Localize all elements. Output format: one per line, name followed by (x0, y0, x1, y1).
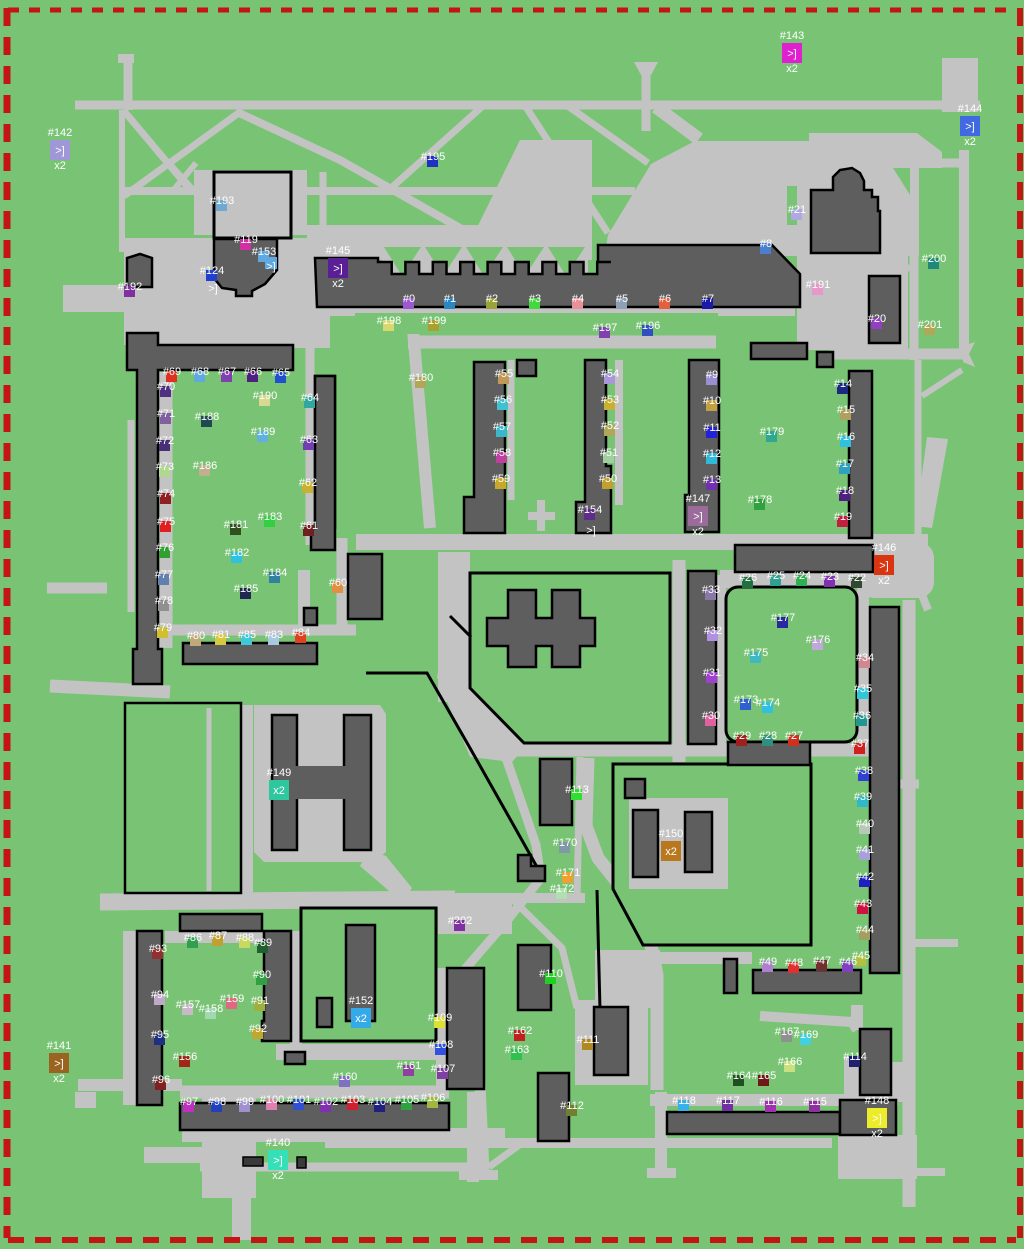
svg-text:#197: #197 (593, 322, 617, 334)
svg-text:#87: #87 (209, 930, 227, 942)
svg-text:#31: #31 (703, 667, 721, 679)
svg-text:>]: >] (586, 525, 595, 537)
svg-text:>]: >] (55, 145, 64, 157)
svg-text:#83: #83 (265, 629, 283, 641)
svg-text:#84: #84 (292, 627, 310, 639)
svg-text:#81: #81 (212, 629, 230, 641)
svg-text:x2: x2 (54, 160, 66, 172)
svg-text:#29: #29 (733, 730, 751, 742)
svg-text:#57: #57 (493, 421, 511, 433)
svg-text:#3: #3 (529, 293, 541, 305)
svg-text:#17: #17 (836, 458, 854, 470)
svg-text:#196: #196 (636, 320, 660, 332)
svg-text:#164: #164 (727, 1070, 751, 1082)
svg-text:#54: #54 (601, 368, 619, 380)
svg-text:#180: #180 (409, 372, 433, 384)
svg-text:#48: #48 (785, 957, 803, 969)
svg-text:#200: #200 (922, 253, 946, 265)
svg-text:#102: #102 (314, 1096, 338, 1108)
svg-text:#67: #67 (218, 366, 236, 378)
svg-text:#5: #5 (616, 293, 628, 305)
svg-text:#171: #171 (556, 867, 580, 879)
svg-text:#11: #11 (703, 422, 721, 434)
svg-text:#190: #190 (253, 390, 277, 402)
svg-text:>]: >] (266, 261, 275, 273)
svg-text:#147: #147 (686, 493, 710, 505)
svg-text:#68: #68 (191, 366, 209, 378)
svg-text:#189: #189 (251, 426, 275, 438)
svg-text:#119: #119 (234, 234, 258, 246)
svg-text:#15: #15 (837, 404, 855, 416)
svg-text:#34: #34 (856, 652, 874, 664)
svg-text:#202: #202 (448, 915, 472, 927)
svg-text:#95: #95 (151, 1029, 169, 1041)
svg-text:#16: #16 (837, 431, 855, 443)
svg-text:#106: #106 (421, 1092, 445, 1104)
svg-text:#152: #152 (349, 995, 373, 1007)
svg-text:#30: #30 (702, 710, 720, 722)
svg-text:#162: #162 (508, 1025, 532, 1037)
svg-text:#85: #85 (238, 629, 256, 641)
svg-text:#142: #142 (48, 127, 72, 139)
svg-text:#35: #35 (854, 683, 872, 695)
svg-text:#38: #38 (855, 765, 873, 777)
svg-text:#36: #36 (853, 710, 871, 722)
svg-text:#55: #55 (495, 368, 513, 380)
svg-text:#111: #111 (577, 1034, 600, 1046)
svg-text:x2: x2 (786, 63, 798, 75)
svg-text:#33: #33 (702, 584, 720, 596)
svg-text:#63: #63 (300, 434, 318, 446)
svg-text:#124: #124 (200, 265, 224, 277)
svg-text:#23: #23 (821, 571, 839, 583)
svg-text:>]: >] (208, 283, 217, 295)
svg-text:#60: #60 (329, 577, 347, 589)
svg-text:#181: #181 (224, 519, 248, 531)
svg-text:#176: #176 (806, 634, 830, 646)
svg-text:#40: #40 (856, 818, 874, 830)
svg-text:#91: #91 (251, 995, 269, 1007)
svg-text:#66: #66 (244, 366, 262, 378)
svg-text:#6: #6 (659, 293, 671, 305)
svg-text:#149: #149 (267, 767, 291, 779)
svg-text:#7: #7 (702, 293, 714, 305)
svg-text:#154: #154 (578, 504, 602, 516)
svg-text:#166: #166 (778, 1056, 802, 1068)
svg-text:#108: #108 (429, 1039, 453, 1051)
svg-text:#22: #22 (848, 572, 866, 584)
svg-text:#173: #173 (734, 694, 758, 706)
svg-text:#169: #169 (794, 1029, 818, 1041)
svg-text:#109: #109 (428, 1012, 452, 1024)
svg-text:#174: #174 (756, 697, 780, 709)
svg-text:>]: >] (693, 511, 702, 523)
svg-text:#52: #52 (601, 420, 619, 432)
svg-text:x2: x2 (964, 136, 976, 148)
svg-text:#51: #51 (600, 447, 618, 459)
svg-text:#76: #76 (156, 542, 174, 554)
svg-text:#50: #50 (599, 473, 617, 485)
svg-text:#192: #192 (118, 281, 142, 293)
svg-text:#13: #13 (703, 474, 721, 486)
svg-text:#184: #184 (263, 567, 287, 579)
svg-text:#148: #148 (865, 1095, 889, 1107)
svg-text:#188: #188 (195, 411, 219, 423)
svg-text:>]: >] (54, 1058, 63, 1070)
svg-text:#182: #182 (225, 547, 249, 559)
svg-text:#99: #99 (236, 1096, 254, 1108)
svg-text:#4: #4 (572, 293, 584, 305)
svg-text:>]: >] (872, 1113, 881, 1125)
svg-text:#24: #24 (793, 570, 811, 582)
svg-text:#19: #19 (834, 511, 852, 523)
svg-text:#49: #49 (759, 956, 777, 968)
svg-text:#90: #90 (253, 969, 271, 981)
svg-text:#146: #146 (872, 542, 896, 554)
svg-text:#157: #157 (176, 999, 200, 1011)
svg-text:#144: #144 (958, 103, 982, 115)
svg-text:#199: #199 (422, 315, 446, 327)
svg-text:#75: #75 (157, 516, 175, 528)
svg-text:#101: #101 (287, 1094, 311, 1106)
svg-text:#79: #79 (154, 622, 172, 634)
svg-text:#58: #58 (493, 447, 511, 459)
svg-text:#25: #25 (767, 570, 785, 582)
svg-text:>]: >] (879, 560, 888, 572)
svg-text:#64: #64 (301, 392, 319, 404)
svg-text:#153: #153 (252, 246, 276, 258)
svg-text:#186: #186 (193, 460, 217, 472)
svg-text:#104: #104 (368, 1096, 392, 1108)
svg-text:#62: #62 (299, 477, 317, 489)
svg-text:#150: #150 (659, 828, 683, 840)
svg-text:x2: x2 (273, 785, 285, 797)
svg-text:#107: #107 (431, 1063, 455, 1075)
svg-text:#140: #140 (266, 1137, 290, 1149)
svg-text:#80: #80 (187, 630, 205, 642)
svg-text:#86: #86 (184, 932, 202, 944)
svg-text:>]: >] (333, 263, 342, 275)
svg-text:#179: #179 (760, 426, 784, 438)
svg-text:#27: #27 (785, 730, 803, 742)
svg-text:#110: #110 (539, 968, 563, 980)
svg-text:#198: #198 (377, 315, 401, 327)
svg-text:#175: #175 (744, 647, 768, 659)
svg-text:#14: #14 (834, 378, 852, 390)
svg-text:#178: #178 (748, 494, 772, 506)
svg-text:#73: #73 (156, 461, 174, 473)
svg-text:#103: #103 (341, 1094, 365, 1106)
svg-text:#77: #77 (155, 569, 173, 581)
svg-text:#70: #70 (157, 381, 175, 393)
svg-text:#141: #141 (47, 1040, 71, 1052)
svg-text:#114: #114 (843, 1051, 867, 1063)
svg-text:#159: #159 (220, 993, 244, 1005)
svg-text:#143: #143 (780, 30, 804, 42)
svg-text:#12: #12 (703, 448, 721, 460)
svg-text:#92: #92 (249, 1023, 267, 1035)
svg-text:#97: #97 (180, 1096, 198, 1108)
svg-text:#1: #1 (444, 293, 456, 305)
svg-text:x2: x2 (53, 1073, 65, 1085)
svg-text:#78: #78 (155, 595, 173, 607)
svg-text:#61: #61 (300, 520, 318, 532)
svg-text:#98: #98 (208, 1096, 226, 1108)
svg-text:#105: #105 (395, 1094, 419, 1106)
svg-text:#165: #165 (752, 1070, 776, 1082)
svg-text:#177: #177 (771, 612, 795, 624)
svg-text:#65: #65 (272, 367, 290, 379)
svg-text:#39: #39 (854, 791, 872, 803)
svg-text:#56: #56 (494, 394, 512, 406)
svg-text:#28: #28 (759, 730, 777, 742)
svg-text:#96: #96 (152, 1074, 170, 1086)
svg-text:#183: #183 (258, 511, 282, 523)
svg-text:#47: #47 (813, 955, 831, 967)
svg-text:#37: #37 (851, 738, 869, 750)
svg-text:#89: #89 (254, 937, 272, 949)
svg-text:#74: #74 (157, 488, 175, 500)
svg-text:#53: #53 (601, 394, 619, 406)
svg-text:#18: #18 (836, 485, 854, 497)
svg-text:#193: #193 (210, 195, 234, 207)
svg-text:#161: #161 (397, 1060, 421, 1072)
svg-text:#32: #32 (704, 625, 722, 637)
svg-text:#9: #9 (706, 369, 718, 381)
svg-text:>]: >] (273, 1155, 282, 1167)
svg-text:#115: #115 (803, 1096, 827, 1108)
svg-text:#10: #10 (703, 395, 721, 407)
svg-text:#163: #163 (505, 1044, 529, 1056)
svg-text:>]: >] (787, 48, 796, 60)
svg-text:#94: #94 (151, 989, 169, 1001)
svg-text:#46: #46 (839, 956, 857, 968)
svg-text:#59: #59 (492, 473, 510, 485)
svg-text:#20: #20 (868, 313, 886, 325)
svg-text:#191: #191 (806, 279, 830, 291)
svg-text:#195: #195 (421, 151, 445, 163)
svg-text:>]: >] (965, 121, 974, 133)
svg-text:#112: #112 (560, 1100, 584, 1112)
svg-text:#26: #26 (739, 572, 757, 584)
svg-text:#44: #44 (856, 924, 874, 936)
svg-text:#43: #43 (854, 898, 872, 910)
svg-text:#172: #172 (550, 883, 574, 895)
svg-text:x2: x2 (272, 1170, 284, 1182)
svg-text:#72: #72 (156, 435, 174, 447)
svg-text:#71: #71 (157, 408, 175, 420)
svg-text:#21: #21 (788, 204, 806, 216)
svg-text:#185: #185 (234, 583, 258, 595)
svg-text:#69: #69 (163, 366, 181, 378)
svg-text:#93: #93 (149, 943, 167, 955)
svg-text:#88: #88 (236, 932, 254, 944)
svg-text:#41: #41 (856, 844, 874, 856)
svg-text:x2: x2 (665, 846, 677, 858)
svg-text:#118: #118 (672, 1095, 696, 1107)
svg-text:x2: x2 (355, 1013, 367, 1025)
svg-text:x2: x2 (871, 1128, 883, 1140)
svg-text:#170: #170 (553, 837, 577, 849)
svg-text:#100: #100 (260, 1094, 284, 1106)
svg-text:#0: #0 (403, 293, 415, 305)
svg-text:#156: #156 (173, 1051, 197, 1063)
svg-text:#113: #113 (565, 784, 589, 796)
svg-text:x2: x2 (878, 575, 890, 587)
svg-text:#42: #42 (856, 871, 874, 883)
svg-text:#201: #201 (918, 319, 942, 331)
svg-text:x2: x2 (332, 278, 344, 290)
svg-text:#160: #160 (333, 1071, 357, 1083)
svg-text:x2: x2 (692, 526, 704, 538)
svg-text:#117: #117 (716, 1095, 740, 1107)
svg-text:#8: #8 (760, 238, 772, 250)
svg-text:#145: #145 (326, 245, 350, 257)
svg-text:#116: #116 (759, 1096, 783, 1108)
svg-text:#2: #2 (486, 293, 498, 305)
